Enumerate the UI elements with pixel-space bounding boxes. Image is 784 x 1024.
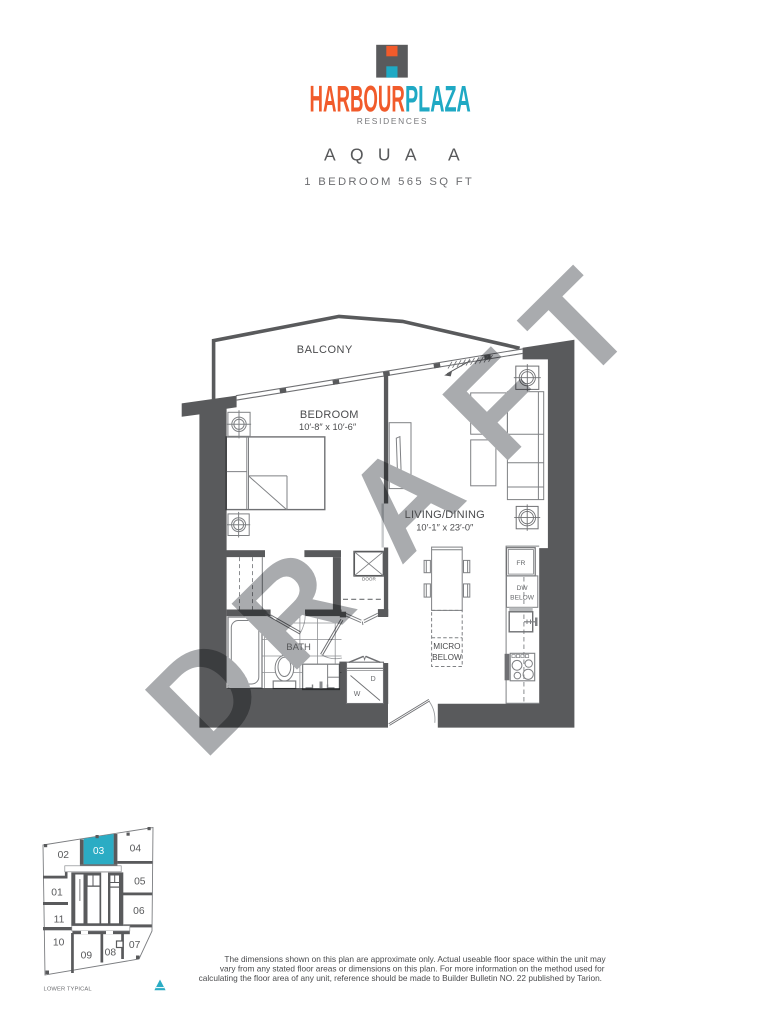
svg-text:HARBOUR: HARBOUR bbox=[310, 78, 405, 119]
svg-text:10′-8″ x 10′-6″: 10′-8″ x 10′-6″ bbox=[299, 422, 357, 432]
svg-text:BATH: BATH bbox=[286, 642, 311, 653]
svg-text:DRAFT: DRAFT bbox=[118, 243, 660, 783]
svg-text:01: 01 bbox=[51, 888, 63, 899]
svg-text:RESIDENCES: RESIDENCES bbox=[357, 116, 428, 126]
svg-text:11: 11 bbox=[54, 915, 65, 926]
svg-text:07: 07 bbox=[129, 940, 141, 951]
svg-text:10′-1″ x 23′-0″: 10′-1″ x 23′-0″ bbox=[416, 522, 474, 532]
svg-text:W: W bbox=[354, 691, 361, 698]
svg-text:02: 02 bbox=[58, 850, 70, 861]
svg-text:MICRO: MICRO bbox=[433, 642, 460, 651]
svg-text:BEDROOM: BEDROOM bbox=[300, 409, 359, 421]
svg-text:1 BEDROOM 565 SQ FT: 1 BEDROOM 565 SQ FT bbox=[304, 176, 474, 188]
svg-text:BELOW: BELOW bbox=[432, 653, 462, 662]
svg-text:DOOR: DOOR bbox=[362, 577, 376, 582]
svg-text:06: 06 bbox=[133, 906, 145, 917]
svg-text:LOWER TYPICAL: LOWER TYPICAL bbox=[44, 987, 93, 993]
svg-text:vary from any stated floor are: vary from any stated floor areas or dime… bbox=[220, 963, 605, 973]
svg-text:LIVING/DINING: LIVING/DINING bbox=[405, 509, 485, 521]
svg-text:D: D bbox=[371, 676, 376, 683]
svg-text:10: 10 bbox=[53, 938, 65, 949]
svg-text:calculating the floor area of: calculating the floor area of any unit, … bbox=[199, 973, 602, 983]
svg-text:AQUA A: AQUA A bbox=[324, 145, 474, 165]
svg-text:03: 03 bbox=[93, 846, 105, 857]
svg-text:08: 08 bbox=[105, 948, 117, 959]
svg-text:BALCONY: BALCONY bbox=[297, 344, 353, 356]
svg-text:FR: FR bbox=[516, 560, 525, 567]
svg-text:BELOW: BELOW bbox=[510, 595, 535, 602]
svg-text:05: 05 bbox=[134, 877, 146, 888]
svg-text:09: 09 bbox=[81, 951, 93, 962]
svg-text:04: 04 bbox=[130, 844, 142, 855]
svg-text:DW: DW bbox=[517, 585, 529, 592]
svg-text:PLAZA: PLAZA bbox=[405, 78, 471, 119]
